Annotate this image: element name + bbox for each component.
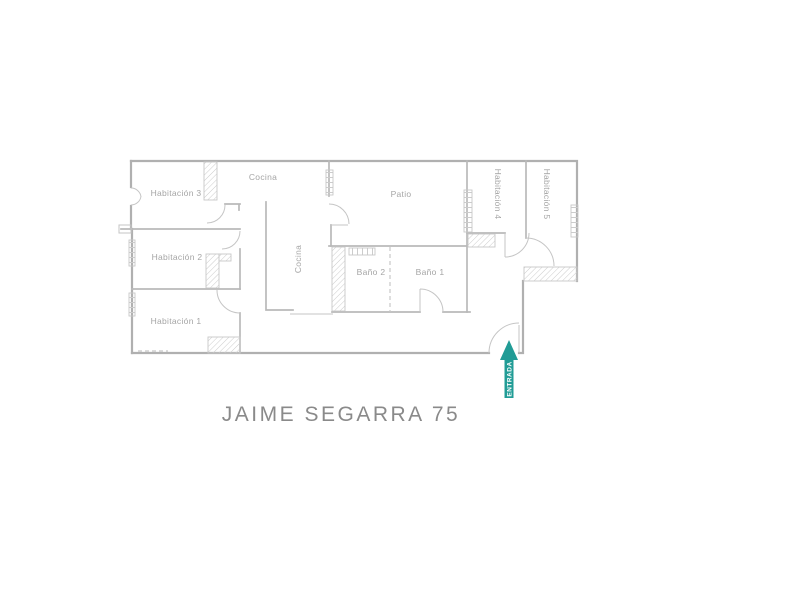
window-habitacion5-right [571, 205, 578, 237]
window-habitacion1-left [129, 293, 135, 316]
window-habitacion2-left [129, 240, 135, 266]
french-door-habitacion3 [131, 188, 141, 205]
window-cocina-patio [326, 170, 333, 195]
door-bano1 [420, 289, 443, 312]
door-habitacion3 [207, 205, 225, 223]
room-label-bano-1: Baño 1 [416, 267, 445, 277]
room-label-habitacion-2: Habitación 2 [152, 252, 203, 262]
room-label-habitacion-1: Habitación 1 [151, 316, 202, 326]
closet-habitacion1 [208, 337, 240, 353]
door-habitacion1 [217, 290, 240, 313]
door-habitacion5 [526, 238, 554, 266]
door-entrance [489, 323, 519, 353]
closet-habitacion2 [206, 254, 219, 288]
entrance-arrow: ENTRADA [500, 340, 518, 398]
room-label-habitacion-4: Habitación 4 [493, 169, 503, 220]
floor-plan-page: Habitación 3 Habitación 2 Habitación 1 C… [0, 0, 800, 600]
room-label-habitacion-3: Habitación 3 [151, 188, 202, 198]
door-patio [329, 204, 349, 225]
room-label-habitacion-5: Habitación 5 [542, 169, 552, 220]
window-patio-habitacion4 [464, 190, 472, 232]
floor-plan-svg: Habitación 3 Habitación 2 Habitación 1 C… [0, 0, 800, 600]
closet-habitacion3 [204, 162, 217, 200]
window-patio-bano2 [349, 248, 375, 255]
window-gallery-habitacion5 [524, 267, 577, 281]
door-habitacion2 [222, 231, 240, 249]
entrance-label: ENTRADA [507, 361, 514, 396]
room-label-patio: Patio [391, 189, 412, 199]
shaft-bano2 [332, 247, 345, 311]
plan-title: JAIME SEGARRA 75 [222, 403, 460, 426]
room-label-bano-2: Baño 2 [357, 267, 386, 277]
room-label-cocina-vertical: Cocina [293, 245, 303, 273]
closet-hatches [204, 162, 495, 353]
room-label-cocina: Cocina [249, 172, 277, 182]
closet-habitacion2-shelf [219, 254, 231, 261]
closet-habitacion4 [468, 234, 495, 247]
